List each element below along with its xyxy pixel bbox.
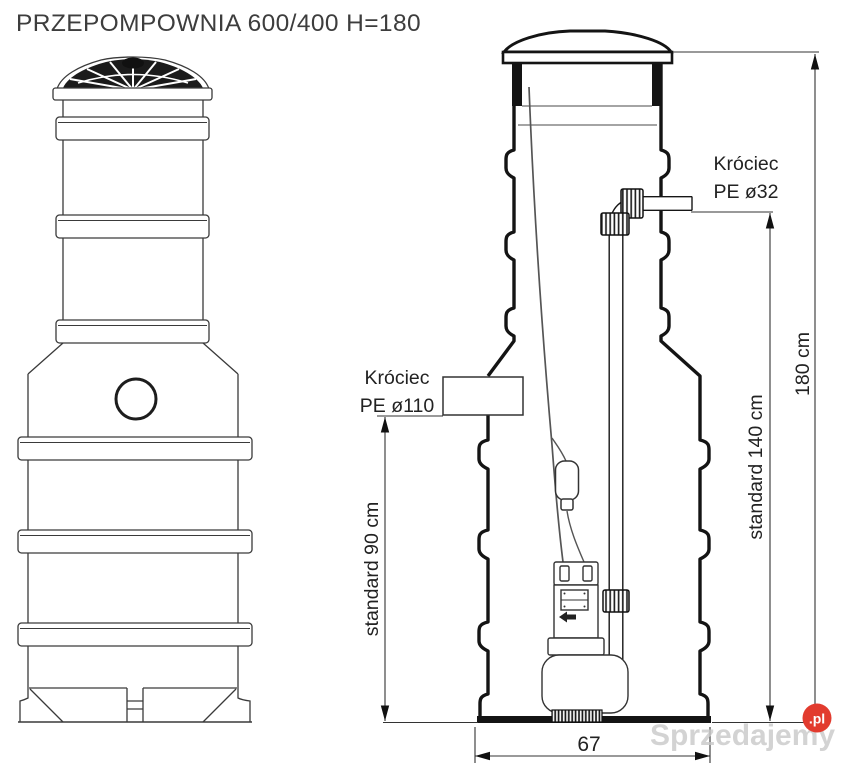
- tank-3d-view: [18, 57, 252, 722]
- inlet-label-line2: PE ø110: [360, 395, 435, 417]
- page-title: PRZEPOMPOWNIA 600/400 H=180: [16, 10, 421, 37]
- dim-67-label: 67: [577, 733, 600, 756]
- tank-base: [18, 688, 252, 722]
- outlet-elbow: [601, 189, 643, 235]
- pump-station-drawing: PRZEPOMPOWNIA 600/400 H=180: [0, 0, 846, 768]
- float-switch: [556, 461, 579, 510]
- manhole-cover-dome: [57, 57, 209, 90]
- dim-90cm-label: standard 90 cm: [361, 502, 383, 636]
- inlet-label-line1: Króciec: [364, 367, 429, 389]
- outlet-label-line2: PE ø32: [713, 181, 778, 203]
- dim-180cm-label: 180 cm: [792, 332, 814, 396]
- dim-140cm-label: standard 140 cm: [745, 394, 767, 539]
- watermark: Sprzedajemy .pl: [650, 704, 835, 753]
- pipe-union-fitting: [603, 590, 629, 612]
- watermark-pl-text: .pl: [809, 711, 825, 727]
- pump-volute: [542, 655, 628, 713]
- inlet-pipe-stub: [443, 377, 523, 415]
- tank-body: [18, 437, 252, 688]
- tank-section-view: [443, 31, 711, 723]
- inlet-hole: [116, 379, 156, 419]
- outlet-label-line1: Króciec: [713, 153, 778, 175]
- pump-strainer: [552, 710, 602, 722]
- tank-neck: [53, 88, 212, 343]
- diagram-page: PRZEPOMPOWNIA 600/400 H=180: [0, 0, 846, 768]
- section-lid: [503, 31, 672, 125]
- dimension-90cm: [377, 416, 478, 723]
